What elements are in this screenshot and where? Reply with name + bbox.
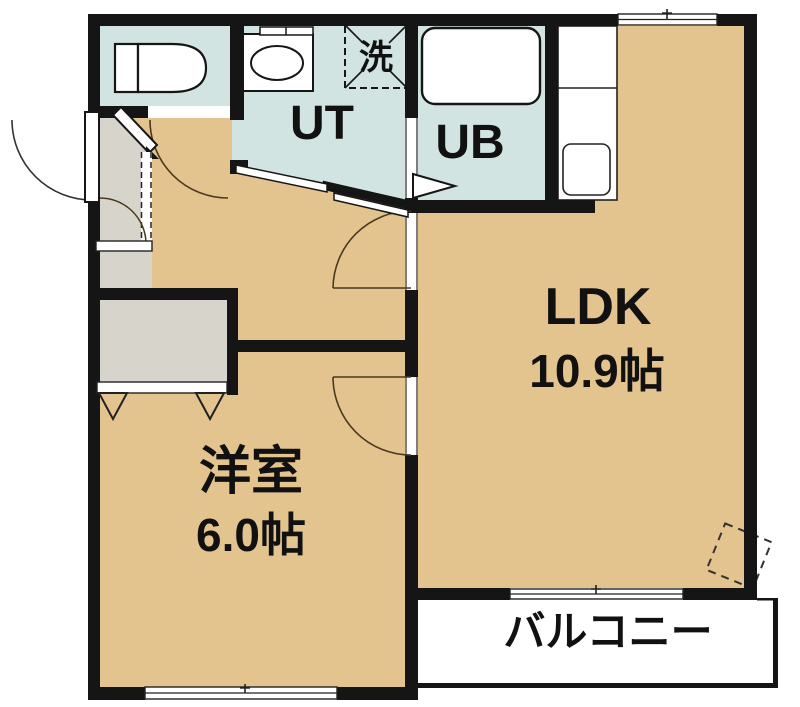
opening-western-ldk bbox=[405, 377, 418, 455]
wall-top-right bbox=[717, 14, 757, 26]
wall-left-lower bbox=[88, 200, 100, 687]
laundry-label: 洗 bbox=[359, 39, 393, 77]
wall-ub-right bbox=[545, 14, 558, 213]
wall-room-divider bbox=[233, 340, 418, 352]
wall-western-ldk bbox=[405, 455, 418, 700]
western-room-size-label: 6.0帖 bbox=[196, 509, 306, 561]
ub-label: UB bbox=[435, 116, 504, 169]
opening-toilet-door bbox=[148, 106, 230, 118]
toilet-icon bbox=[115, 44, 206, 92]
balcony-rail-bottom bbox=[418, 683, 778, 688]
balcony-rail-right bbox=[773, 598, 778, 688]
wall-right bbox=[744, 26, 757, 598]
kitchen-sink-icon bbox=[563, 144, 610, 195]
closet-floor bbox=[100, 300, 227, 382]
balcony-rail-top bbox=[757, 598, 775, 601]
wall-kitchen-bottom bbox=[405, 200, 595, 213]
wall-hall-ldk-mid bbox=[405, 290, 418, 377]
wall-closet-right bbox=[227, 290, 238, 395]
washbasin-icon bbox=[242, 27, 313, 91]
front-door-leaf bbox=[85, 112, 99, 202]
wall-left-upper bbox=[88, 26, 100, 115]
wall-closet-top bbox=[88, 288, 238, 300]
western-room-label: 洋室 bbox=[199, 443, 303, 501]
opening-hall-ldk bbox=[405, 213, 418, 290]
balcony-label: バルコニー bbox=[503, 608, 712, 655]
front-door-swing-arc bbox=[12, 120, 92, 200]
kitchen-counter bbox=[558, 26, 617, 200]
wall-top-left bbox=[88, 14, 618, 26]
wall-toilet-right bbox=[230, 14, 244, 120]
ldk-label: LDK bbox=[545, 278, 652, 336]
floor-plan-page: UT UB 洗 LDK 10.9帖 洋室 6.0帖 バルコニー bbox=[0, 0, 800, 707]
wall-bottom-left bbox=[88, 687, 145, 700]
ldk-size-label: 10.9帖 bbox=[529, 345, 665, 397]
bathtub-icon bbox=[422, 28, 540, 104]
entrance-storage-door-leaf bbox=[96, 241, 152, 251]
front-door bbox=[12, 112, 99, 202]
wall-balcony-left bbox=[405, 588, 510, 600]
wall-balcony-right bbox=[683, 588, 757, 600]
ut-label: UT bbox=[290, 97, 354, 150]
window-ldk-top bbox=[618, 9, 717, 25]
floor-plan: UT UB 洗 LDK 10.9帖 洋室 6.0帖 バルコニー bbox=[0, 0, 800, 707]
entrance-step-partition bbox=[141, 152, 152, 243]
closet-door-track bbox=[97, 382, 227, 393]
wall-ut-ub bbox=[405, 14, 418, 118]
